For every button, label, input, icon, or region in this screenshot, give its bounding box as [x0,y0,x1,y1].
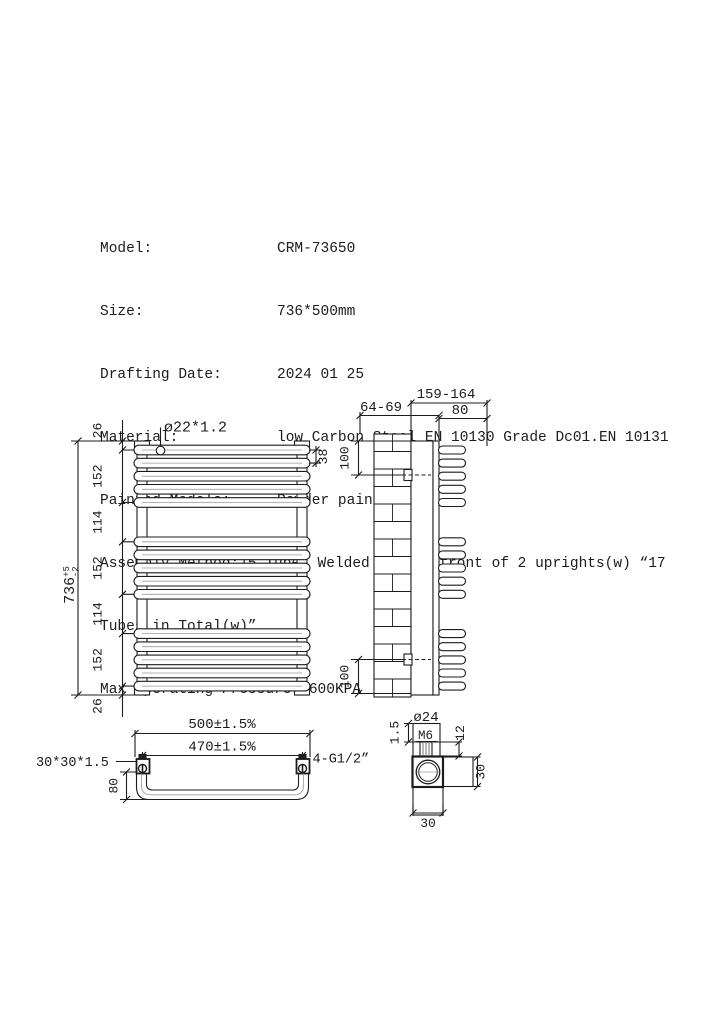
front-view: ø22*1.2 38 26 152 114 152 114 152 26 736… [62,420,331,718]
dim-1-5-label: 1.5 [388,721,403,744]
connections-label: 4-G1/2” [313,753,370,768]
plan-fitting-right [297,755,310,774]
plan-fitting-left [137,755,150,774]
dim-64-69-label: 64-69 [360,400,402,416]
dim-chain-152-2: 152 [91,556,106,579]
dim-159-164 [408,400,491,447]
upright-spec-label: 30*30*1.5 [36,756,109,771]
detail-bottom-box [413,787,443,815]
dim-chain-26-bottom: 26 [91,698,106,714]
detail-tube-section [416,760,440,784]
thread-label: M6 [418,729,433,743]
plan-view: 500±1.5% 470±1.5% 80 [36,717,369,803]
dim-470-label: 470±1.5% [188,740,256,756]
dim-736-label: 736+5-2 [62,566,81,604]
dim-chain-152-3: 152 [91,648,106,671]
dim-30-right-label: 30 [474,764,489,780]
dim-12-label: 12 [453,725,468,741]
dim-chain-114-1: 114 [91,510,106,534]
side-upright [411,441,439,695]
dim-chain-114-2: 114 [91,602,106,626]
side-view: 159-164 64-69 80 100 100 [338,387,491,697]
tube-spec-label: ø22*1.2 [164,420,227,437]
technical-drawing: ø22*1.2 38 26 152 114 152 114 152 26 736… [0,0,720,1018]
dim-30-bottom-label: 30 [420,816,436,831]
detail-right-box [443,757,473,787]
dim-100-top-label: 100 [338,446,353,469]
dim-38-label: 38 [316,449,331,465]
dim-159-164-label: 159-164 [417,387,476,403]
dim-80-side-label: 80 [452,403,469,419]
dim-chain [119,420,134,717]
detail-view: ø24 M6 1.5 12 30 [388,710,489,831]
vent-stem [420,742,432,756]
dim-100-bottom-label: 100 [338,665,353,688]
plan-bow-tube [137,774,309,800]
side-tube-ends [439,446,466,690]
dim-chain-26-top: 26 [91,423,106,439]
dim-chain-152-1: 152 [91,464,106,487]
dim-500-label: 500±1.5% [188,717,256,733]
dim-80-plan-label: 80 [107,778,122,794]
